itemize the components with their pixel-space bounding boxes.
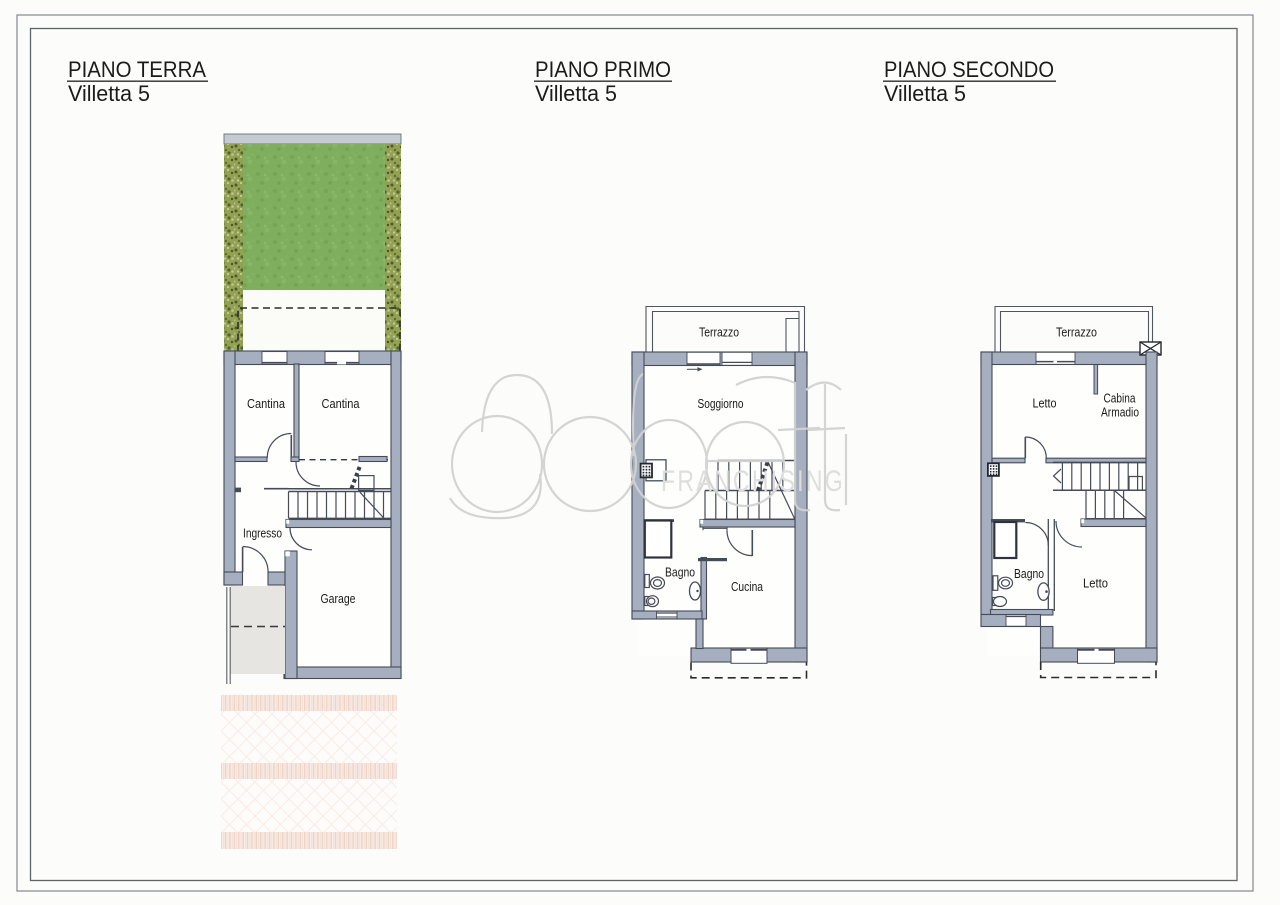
svg-text:Armadio: Armadio [1101, 405, 1139, 420]
svg-text:Bagno: Bagno [1014, 566, 1044, 581]
svg-text:Villetta 5: Villetta 5 [884, 81, 966, 106]
svg-text:Terrazzo: Terrazzo [1056, 325, 1097, 340]
svg-text:PIANO SECONDO: PIANO SECONDO [884, 57, 1054, 82]
svg-text:PIANO PRIMO: PIANO PRIMO [535, 57, 671, 82]
svg-text:Cucina: Cucina [731, 579, 764, 594]
svg-text:Villetta 5: Villetta 5 [68, 81, 150, 106]
svg-text:Cantina: Cantina [322, 396, 361, 411]
svg-text:Villetta 5: Villetta 5 [535, 81, 617, 106]
svg-text:Letto: Letto [1033, 396, 1057, 411]
svg-text:Bagno: Bagno [665, 565, 695, 580]
svg-text:Ingresso: Ingresso [243, 526, 282, 541]
svg-text:Soggiorno: Soggiorno [698, 396, 744, 411]
svg-text:Terrazzo: Terrazzo [699, 325, 739, 340]
svg-text:Cantina: Cantina [247, 396, 286, 411]
svg-text:Letto: Letto [1083, 576, 1108, 591]
svg-text:Garage: Garage [321, 591, 356, 606]
svg-text:Cabina: Cabina [1104, 391, 1137, 406]
svg-text:PIANO TERRA: PIANO TERRA [68, 57, 206, 82]
svg-text:FRANCHISING: FRANCHISING [661, 465, 845, 498]
